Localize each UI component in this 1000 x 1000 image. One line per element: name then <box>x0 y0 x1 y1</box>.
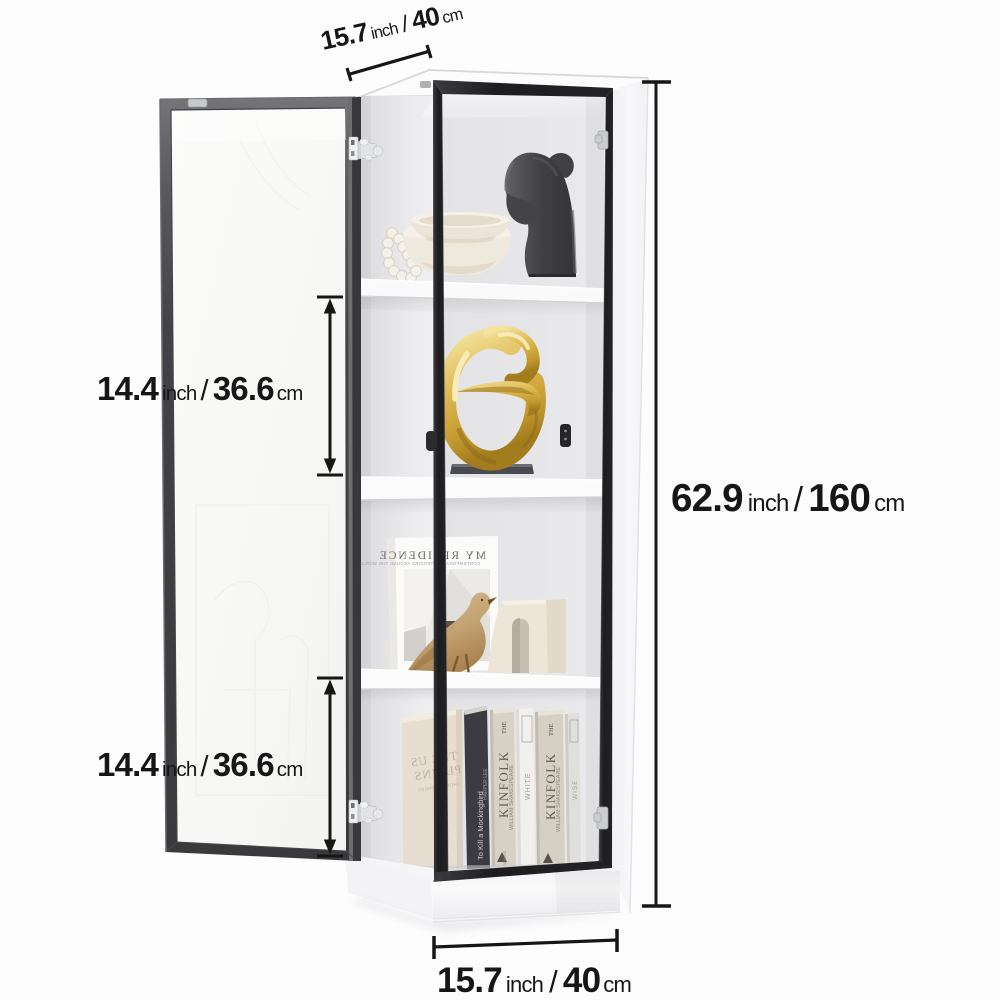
svg-text:14.4inch/36.6cm: 14.4inch/36.6cm <box>97 746 302 783</box>
svg-text:WISE: WISE <box>572 779 579 800</box>
svg-text:CONTEMPORARY INTERIORS AROUND: CONTEMPORARY INTERIORS AROUND THE WORLD <box>359 561 480 566</box>
svg-text:14.4inch/36.6cm: 14.4inch/36.6cm <box>97 370 302 407</box>
svg-text:WHITE: WHITE <box>525 772 532 800</box>
svg-text:WILLIAM SHAKESPEARE: WILLIAM SHAKESPEARE <box>556 767 562 832</box>
svg-text:THE: THE <box>548 723 555 736</box>
svg-text:THE: THE <box>501 721 508 734</box>
svg-text:To Kill a Mockingbird: To Kill a Mockingbird <box>476 791 485 860</box>
svg-text:HARPER LEE: HARPER LEE <box>483 768 489 800</box>
svg-text:WILLIAM SHAKESPEARE: WILLIAM SHAKESPEARE <box>509 765 515 830</box>
